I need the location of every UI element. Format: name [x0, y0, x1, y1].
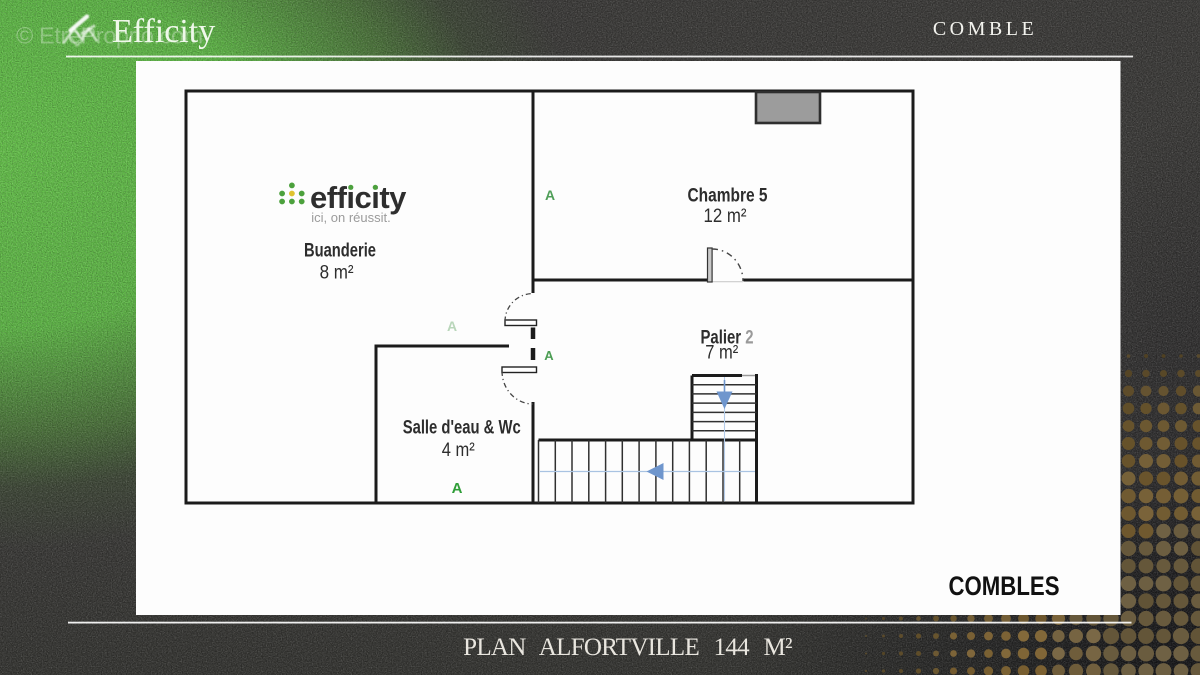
svg-text:ici, on réussit.: ici, on réussit.: [311, 210, 390, 225]
svg-text:12 m²: 12 m²: [704, 206, 747, 227]
svg-text:8 m²: 8 m²: [320, 262, 354, 283]
svg-text:A: A: [452, 480, 463, 497]
svg-text:7 m²: 7 m²: [705, 343, 738, 364]
svg-text:A: A: [544, 348, 554, 363]
svg-text:A: A: [447, 318, 457, 334]
svg-text:COMBLE: COMBLE: [933, 18, 1037, 40]
svg-text:Efficity: Efficity: [112, 13, 215, 50]
svg-text:Salle d'eau & Wc: Salle d'eau & Wc: [403, 418, 521, 439]
svg-text:Chambre 5: Chambre 5: [688, 186, 768, 207]
svg-text:COMBLES: COMBLES: [949, 571, 1060, 601]
svg-text:PLAN ALFORTVILLE 144 M²: PLAN ALFORTVILLE 144 M²: [463, 634, 792, 661]
svg-text:A: A: [545, 187, 555, 203]
svg-text:Buanderie: Buanderie: [304, 240, 376, 261]
svg-text:4 m²: 4 m²: [442, 440, 475, 461]
